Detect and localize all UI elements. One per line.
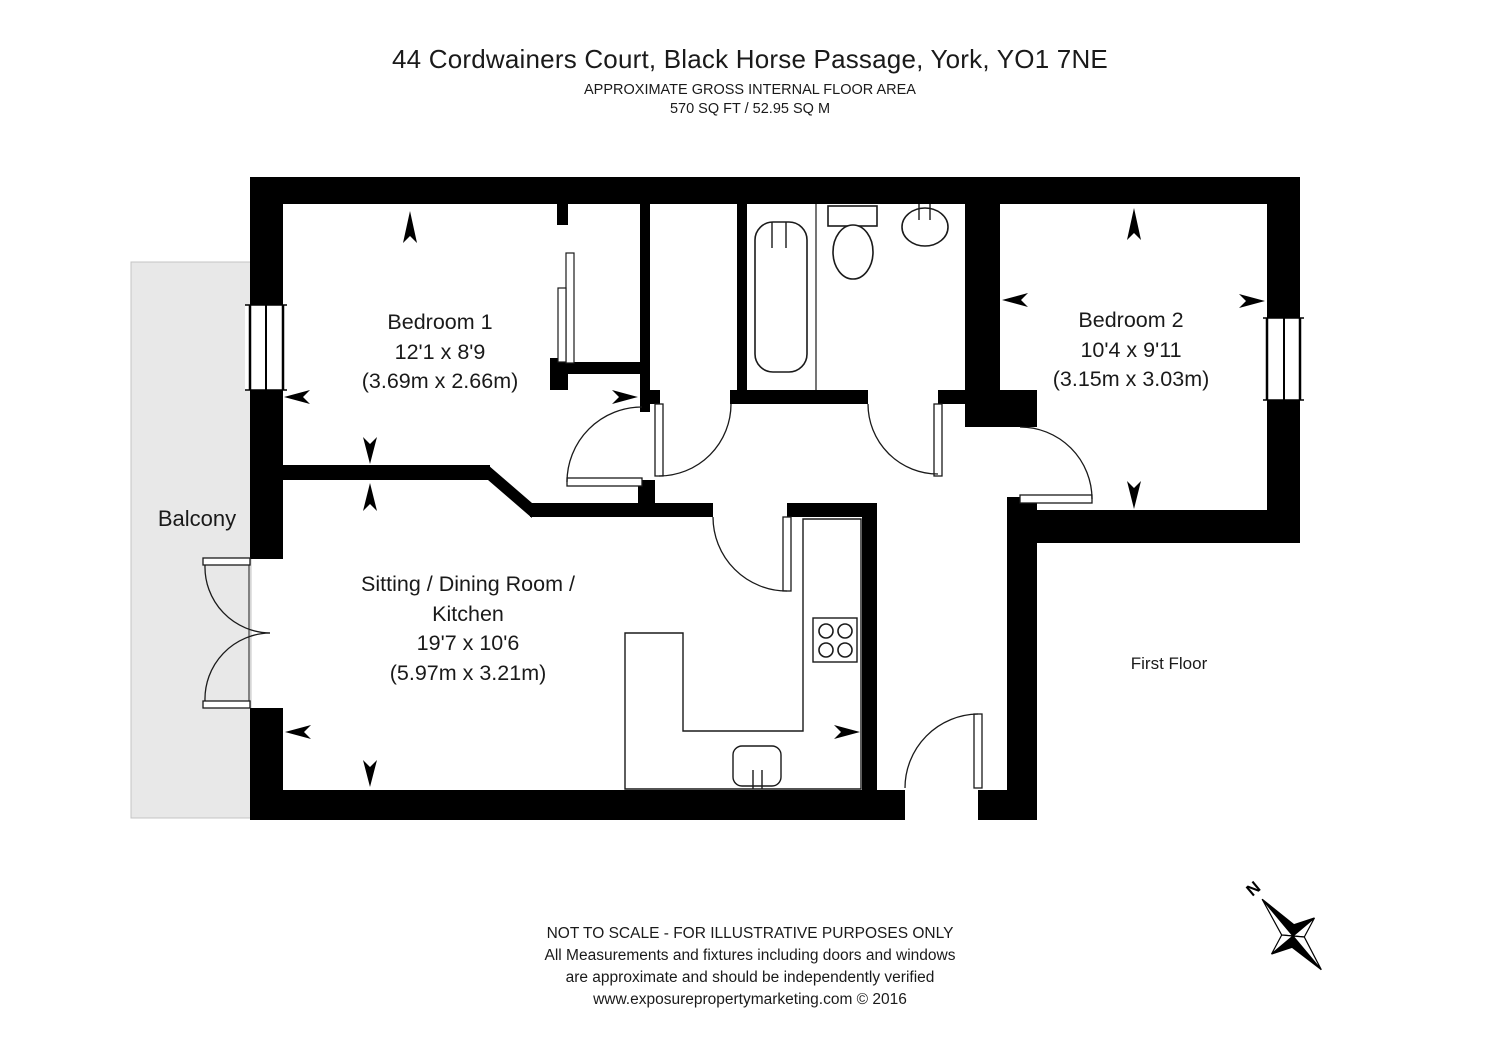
disclaimer-line: NOT TO SCALE - FOR ILLUSTRATIVE PURPOSES… — [0, 923, 1500, 945]
wall-bottom-left — [250, 790, 905, 820]
disclaimer-line: are approximate and should be independen… — [0, 967, 1500, 989]
wall-sitting-north-left — [530, 503, 713, 517]
sink-bowl — [733, 746, 781, 786]
room-dims-imperial: 19'7 x 10'6 — [298, 629, 638, 659]
toilet-cistern-icon — [828, 206, 877, 226]
balcony-area — [131, 262, 251, 818]
door-leaf — [1020, 495, 1092, 503]
wall-bedroom2-bottom — [1007, 510, 1300, 543]
hob-icon — [813, 618, 857, 662]
fixtures — [558, 204, 948, 789]
hob-ring — [838, 643, 852, 657]
door-leaf — [783, 517, 791, 591]
toilet-bowl-icon — [833, 225, 873, 279]
page-title: 44 Cordwainers Court, Black Horse Passag… — [0, 42, 1500, 78]
wall-kitchen-divider — [862, 503, 877, 790]
wall-hall-east — [1007, 497, 1037, 820]
hob-ring — [819, 624, 833, 638]
wall-bathroom-west — [737, 204, 747, 390]
bathroom-door — [868, 404, 942, 476]
wall-diagonal — [488, 465, 532, 518]
room-dims-metric: (5.97m x 3.21m) — [298, 659, 638, 689]
page-subtitle: APPROXIMATE GROSS INTERNAL FLOOR AREA — [0, 80, 1500, 100]
door-arc — [1020, 427, 1092, 499]
room-dims-metric: (3.69m x 2.66m) — [290, 367, 590, 397]
kitchen-sink-icon — [733, 746, 781, 789]
disclaimer: NOT TO SCALE - FOR ILLUSTRATIVE PURPOSES… — [0, 923, 1500, 1011]
basin-icon — [902, 208, 948, 246]
floor-area-text: 570 SQ FT / 52.95 SQ M — [0, 99, 1500, 119]
room-dims-metric: (3.15m x 3.03m) — [981, 365, 1281, 395]
wall-bedroom1-east — [640, 204, 650, 412]
bathtub-icon — [755, 222, 807, 372]
wall-band-b — [730, 390, 868, 404]
arrow-up-icon — [363, 483, 377, 511]
arrow-down-icon — [363, 760, 377, 787]
room-name: Bedroom 2 — [981, 306, 1281, 336]
arrow-up-icon — [403, 211, 417, 243]
arrow-down-icon — [363, 437, 377, 464]
bedroom2-door — [1020, 427, 1092, 503]
arrow-left-icon — [1002, 293, 1028, 307]
room-dims-imperial: 12'1 x 8'9 — [290, 338, 590, 368]
door-leaf — [567, 478, 642, 486]
compass-north-label: N — [1243, 878, 1265, 900]
bedroom1-door — [567, 407, 642, 486]
room-name: Bedroom 1 — [290, 308, 590, 338]
door-arc — [905, 714, 978, 788]
hob-ring — [838, 624, 852, 638]
door-leaf — [974, 714, 982, 788]
wall-left-upper — [250, 177, 283, 305]
wall-top — [250, 177, 1300, 204]
disclaimer-line: All Measurements and fixtures including … — [0, 945, 1500, 967]
floorplan-page: N 44 Cordwainers Court, Black Horse Pass… — [0, 0, 1500, 1061]
door-arc — [567, 407, 642, 482]
bedroom1-label: Bedroom 1 12'1 x 8'9 (3.69m x 2.66m) — [290, 308, 590, 397]
sitting-room-label: Sitting / Dining Room / Kitchen 19'7 x 1… — [298, 570, 638, 689]
door-leaf — [203, 701, 250, 708]
door-leaf — [934, 404, 942, 476]
room-name: Kitchen — [298, 600, 638, 630]
balcony-label: Balcony — [122, 504, 272, 534]
arrow-left-icon — [285, 725, 311, 739]
bedroom2-label: Bedroom 2 10'4 x 9'11 (3.15m x 3.03m) — [981, 306, 1281, 395]
cupboard-door — [655, 404, 731, 476]
balcony-window — [245, 305, 287, 390]
door-arc — [713, 517, 787, 591]
door-arc — [659, 404, 731, 476]
wall-right-upper — [1267, 177, 1300, 318]
wall-band-a — [640, 390, 660, 404]
wall-bedroom1-south — [250, 465, 490, 480]
wall-band-d — [965, 390, 1037, 427]
arrow-up-icon — [1127, 208, 1141, 240]
entrance-door — [905, 714, 982, 788]
wall-nook-stub — [557, 204, 568, 225]
hob-ring — [819, 643, 833, 657]
sitting-room-door — [713, 517, 791, 591]
door-leaf — [655, 404, 663, 476]
door-arc — [868, 404, 938, 474]
door-leaf — [203, 558, 250, 565]
room-dims-imperial: 10'4 x 9'11 — [981, 336, 1281, 366]
floor-level-label: First Floor — [1069, 652, 1269, 675]
arrow-down-icon — [1127, 481, 1141, 509]
room-name: Sitting / Dining Room / — [298, 570, 638, 600]
arrow-right-icon — [612, 390, 638, 404]
disclaimer-line: www.exposurepropertymarketing.com © 2016 — [0, 989, 1500, 1011]
